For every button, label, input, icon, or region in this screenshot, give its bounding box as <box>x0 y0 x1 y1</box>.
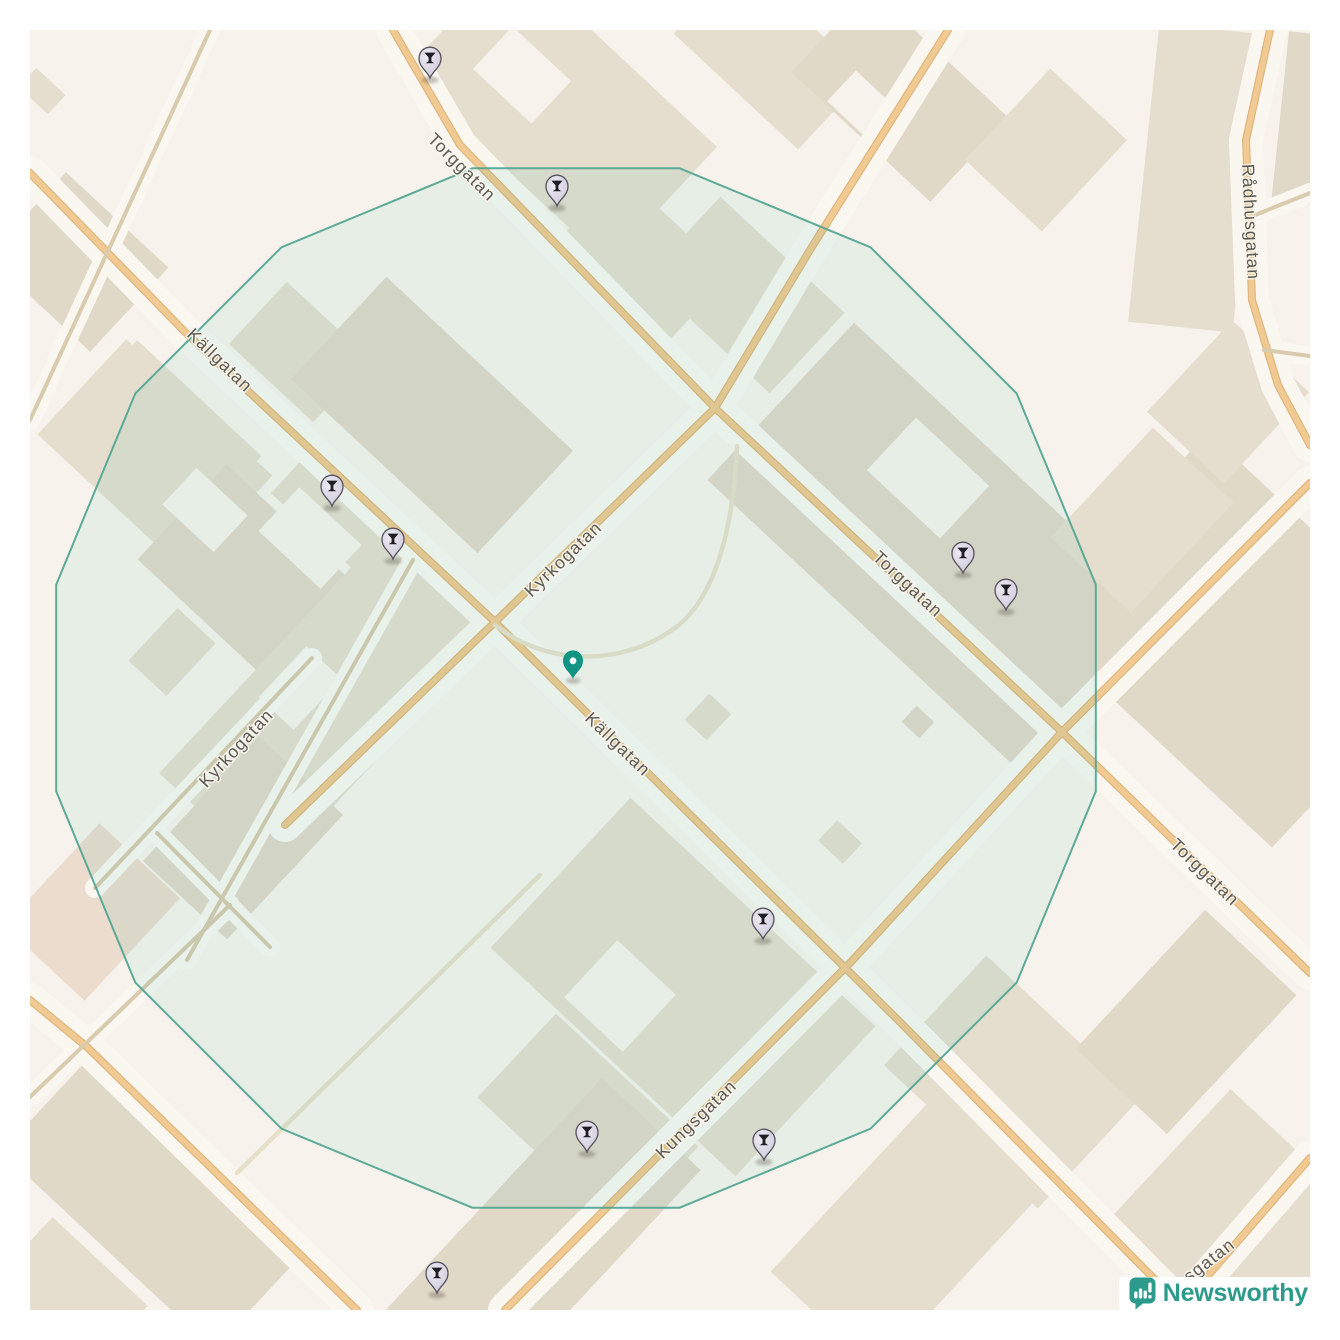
newsworthy-attribution[interactable]: Newsworthy <box>1119 1277 1310 1310</box>
map-canvas[interactable]: TorggatanTorggatanTorggatanKällgatanKäll… <box>0 0 1340 1340</box>
newsworthy-logo-icon <box>1129 1277 1156 1310</box>
radius-overlay <box>56 168 1096 1208</box>
radius-overlay-layer <box>56 168 1096 1208</box>
newsworthy-wordmark: Newsworthy <box>1163 1277 1308 1310</box>
